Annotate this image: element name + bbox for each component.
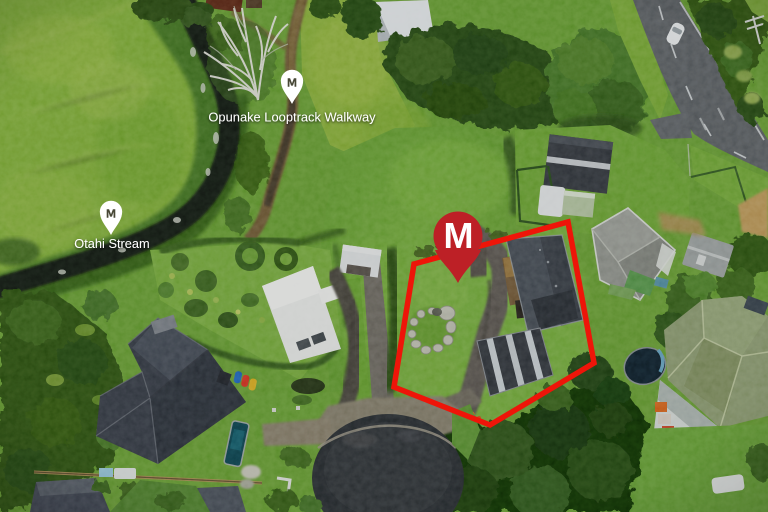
svg-text:Otahi Stream: Otahi Stream — [74, 236, 149, 251]
svg-text:M: M — [444, 215, 474, 256]
svg-text:Opunake Looptrack Walkway: Opunake Looptrack Walkway — [208, 110, 376, 125]
